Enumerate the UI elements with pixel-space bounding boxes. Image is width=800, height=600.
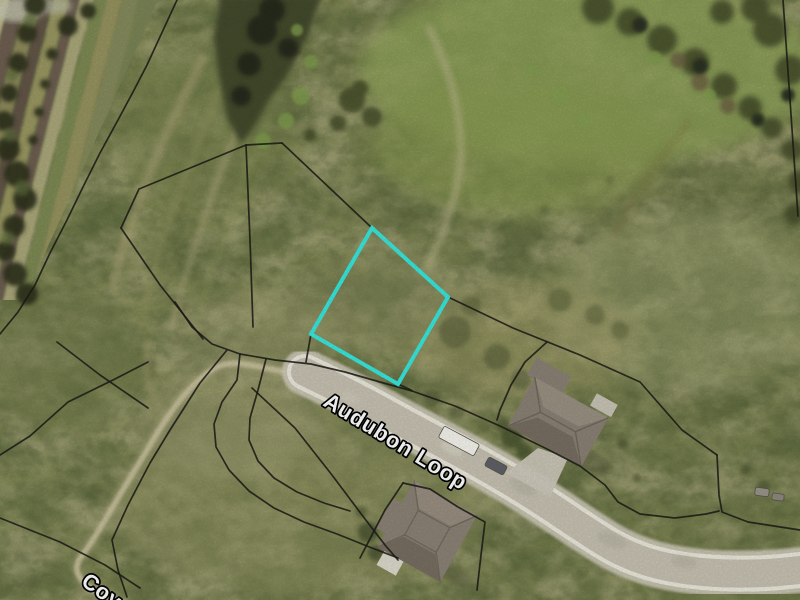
map-viewport[interactable]: Audubon LoopCoyote xyxy=(0,0,800,600)
film-grain xyxy=(0,0,800,600)
